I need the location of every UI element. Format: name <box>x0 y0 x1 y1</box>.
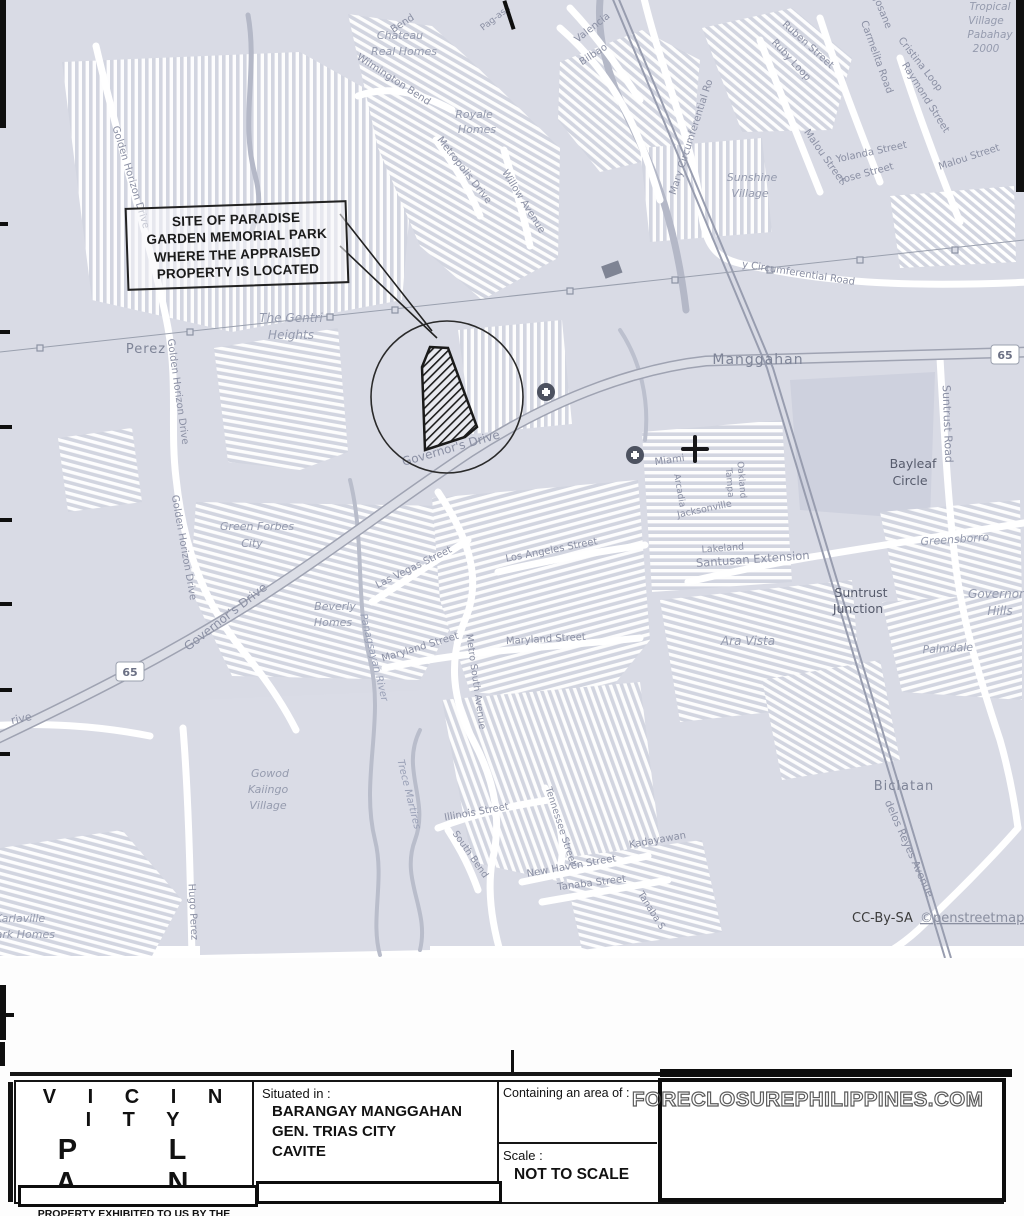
map-label: Bayleaf <box>890 456 937 471</box>
vicinity-map: BendPag-asaWilmington BendMetropolis Dri… <box>0 0 1024 958</box>
osm-attribution-link[interactable]: ©penstreetmap.org <box>920 911 1024 926</box>
map-label: Royale <box>455 108 493 121</box>
scale-value: NOT TO SCALE <box>514 1166 629 1184</box>
area-label: Containing an area of : <box>503 1086 629 1100</box>
scan-edge-mark <box>0 1042 5 1066</box>
map-label: Beverly <box>314 600 356 613</box>
map-label: The Gentri <box>259 311 323 325</box>
map-label: Heights <box>268 328 314 342</box>
titleblock-divider-horizontal <box>497 1142 657 1144</box>
map-label: Manggahan <box>712 352 803 368</box>
license-text: CC-By-SA <box>852 911 913 926</box>
plan-type-title: V I C I N I T Y <box>16 1086 252 1132</box>
hospital-icon <box>626 446 644 464</box>
situated-line: CAVITE <box>272 1142 462 1162</box>
map-label: Park Homes <box>0 928 55 941</box>
map-label: 2000 <box>973 43 1000 55</box>
map-label: Junction <box>832 601 883 616</box>
titleblock-left-bar <box>8 1082 13 1202</box>
titleblock-top-rule-heavy <box>660 1069 1012 1077</box>
map-label: Kaiingo <box>248 783 289 796</box>
map-label: Palmdale <box>922 641 974 657</box>
map-label: Karlaville <box>0 912 45 925</box>
route-shield: 65 <box>991 345 1019 364</box>
map-canvas: BendPag-asaWilmington BendMetropolis Dri… <box>0 0 1024 958</box>
map-label: Village <box>731 187 768 200</box>
blank-field-box <box>18 1185 258 1207</box>
map-label: Gowod <box>251 767 290 780</box>
map-label: City <box>241 537 263 550</box>
map-label: Ara Vista <box>720 634 775 648</box>
map-label: Tropical <box>969 1 1010 13</box>
map-label: Perez <box>126 342 166 357</box>
map-label: Sunshine <box>727 171 778 184</box>
map-label: Suntrust <box>834 585 887 600</box>
scale-label: Scale : <box>503 1148 543 1163</box>
map-label: Suntrust Road <box>940 385 956 463</box>
map-label: Hills <box>987 604 1012 618</box>
blank-field-box <box>256 1181 502 1204</box>
situated-line: GEN. TRIAS CITY <box>272 1122 462 1142</box>
map-label: Homes <box>458 123 496 136</box>
scanned-vicinity-plan-page: BendPag-asaWilmington BendMetropolis Dri… <box>0 0 1024 1216</box>
svg-text:65: 65 <box>997 349 1012 362</box>
route-shield: 65 <box>116 662 144 681</box>
map-label: Village <box>249 799 286 812</box>
svg-text:65: 65 <box>122 666 137 679</box>
map-label: Real Homes <box>371 45 437 58</box>
map-label: Chateau <box>377 29 423 42</box>
situated-in-value: BARANGAY MANGGAHAN GEN. TRIAS CITY CAVIT… <box>272 1102 462 1161</box>
map-label: Biclatan <box>874 779 935 794</box>
map-label: Governor <box>968 587 1024 601</box>
situated-in-label: Situated in : <box>262 1086 331 1101</box>
map-label: Homes <box>314 616 352 629</box>
watermark-text: FORECLOSUREPHILIPPINES.COM <box>632 1088 1012 1112</box>
exhibited-by-label: PROPERTY EXHIBITED TO US BY THE <box>16 1208 252 1216</box>
hospital-icon <box>537 383 555 401</box>
map-label: Circle <box>892 473 927 488</box>
map-label: Pabahay <box>967 29 1013 41</box>
map-label: Village <box>968 15 1004 27</box>
scan-edge-mark <box>0 1013 14 1017</box>
situated-line: BARANGAY MANGGAHAN <box>272 1102 462 1122</box>
site-callout-box: SITE OF PARADISE GARDEN MEMORIAL PARK WH… <box>125 200 350 291</box>
map-label: Green Forbes <box>220 520 294 533</box>
